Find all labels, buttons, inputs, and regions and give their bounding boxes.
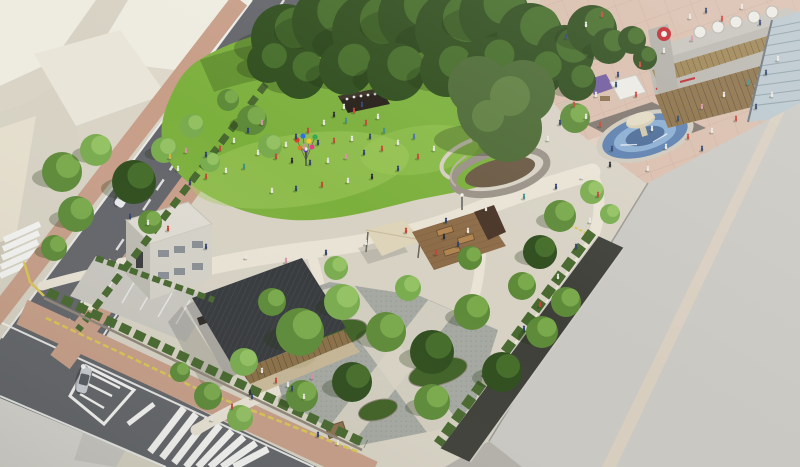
- park-aerial-rendering: [0, 0, 800, 467]
- lighting-overlay: [0, 0, 800, 467]
